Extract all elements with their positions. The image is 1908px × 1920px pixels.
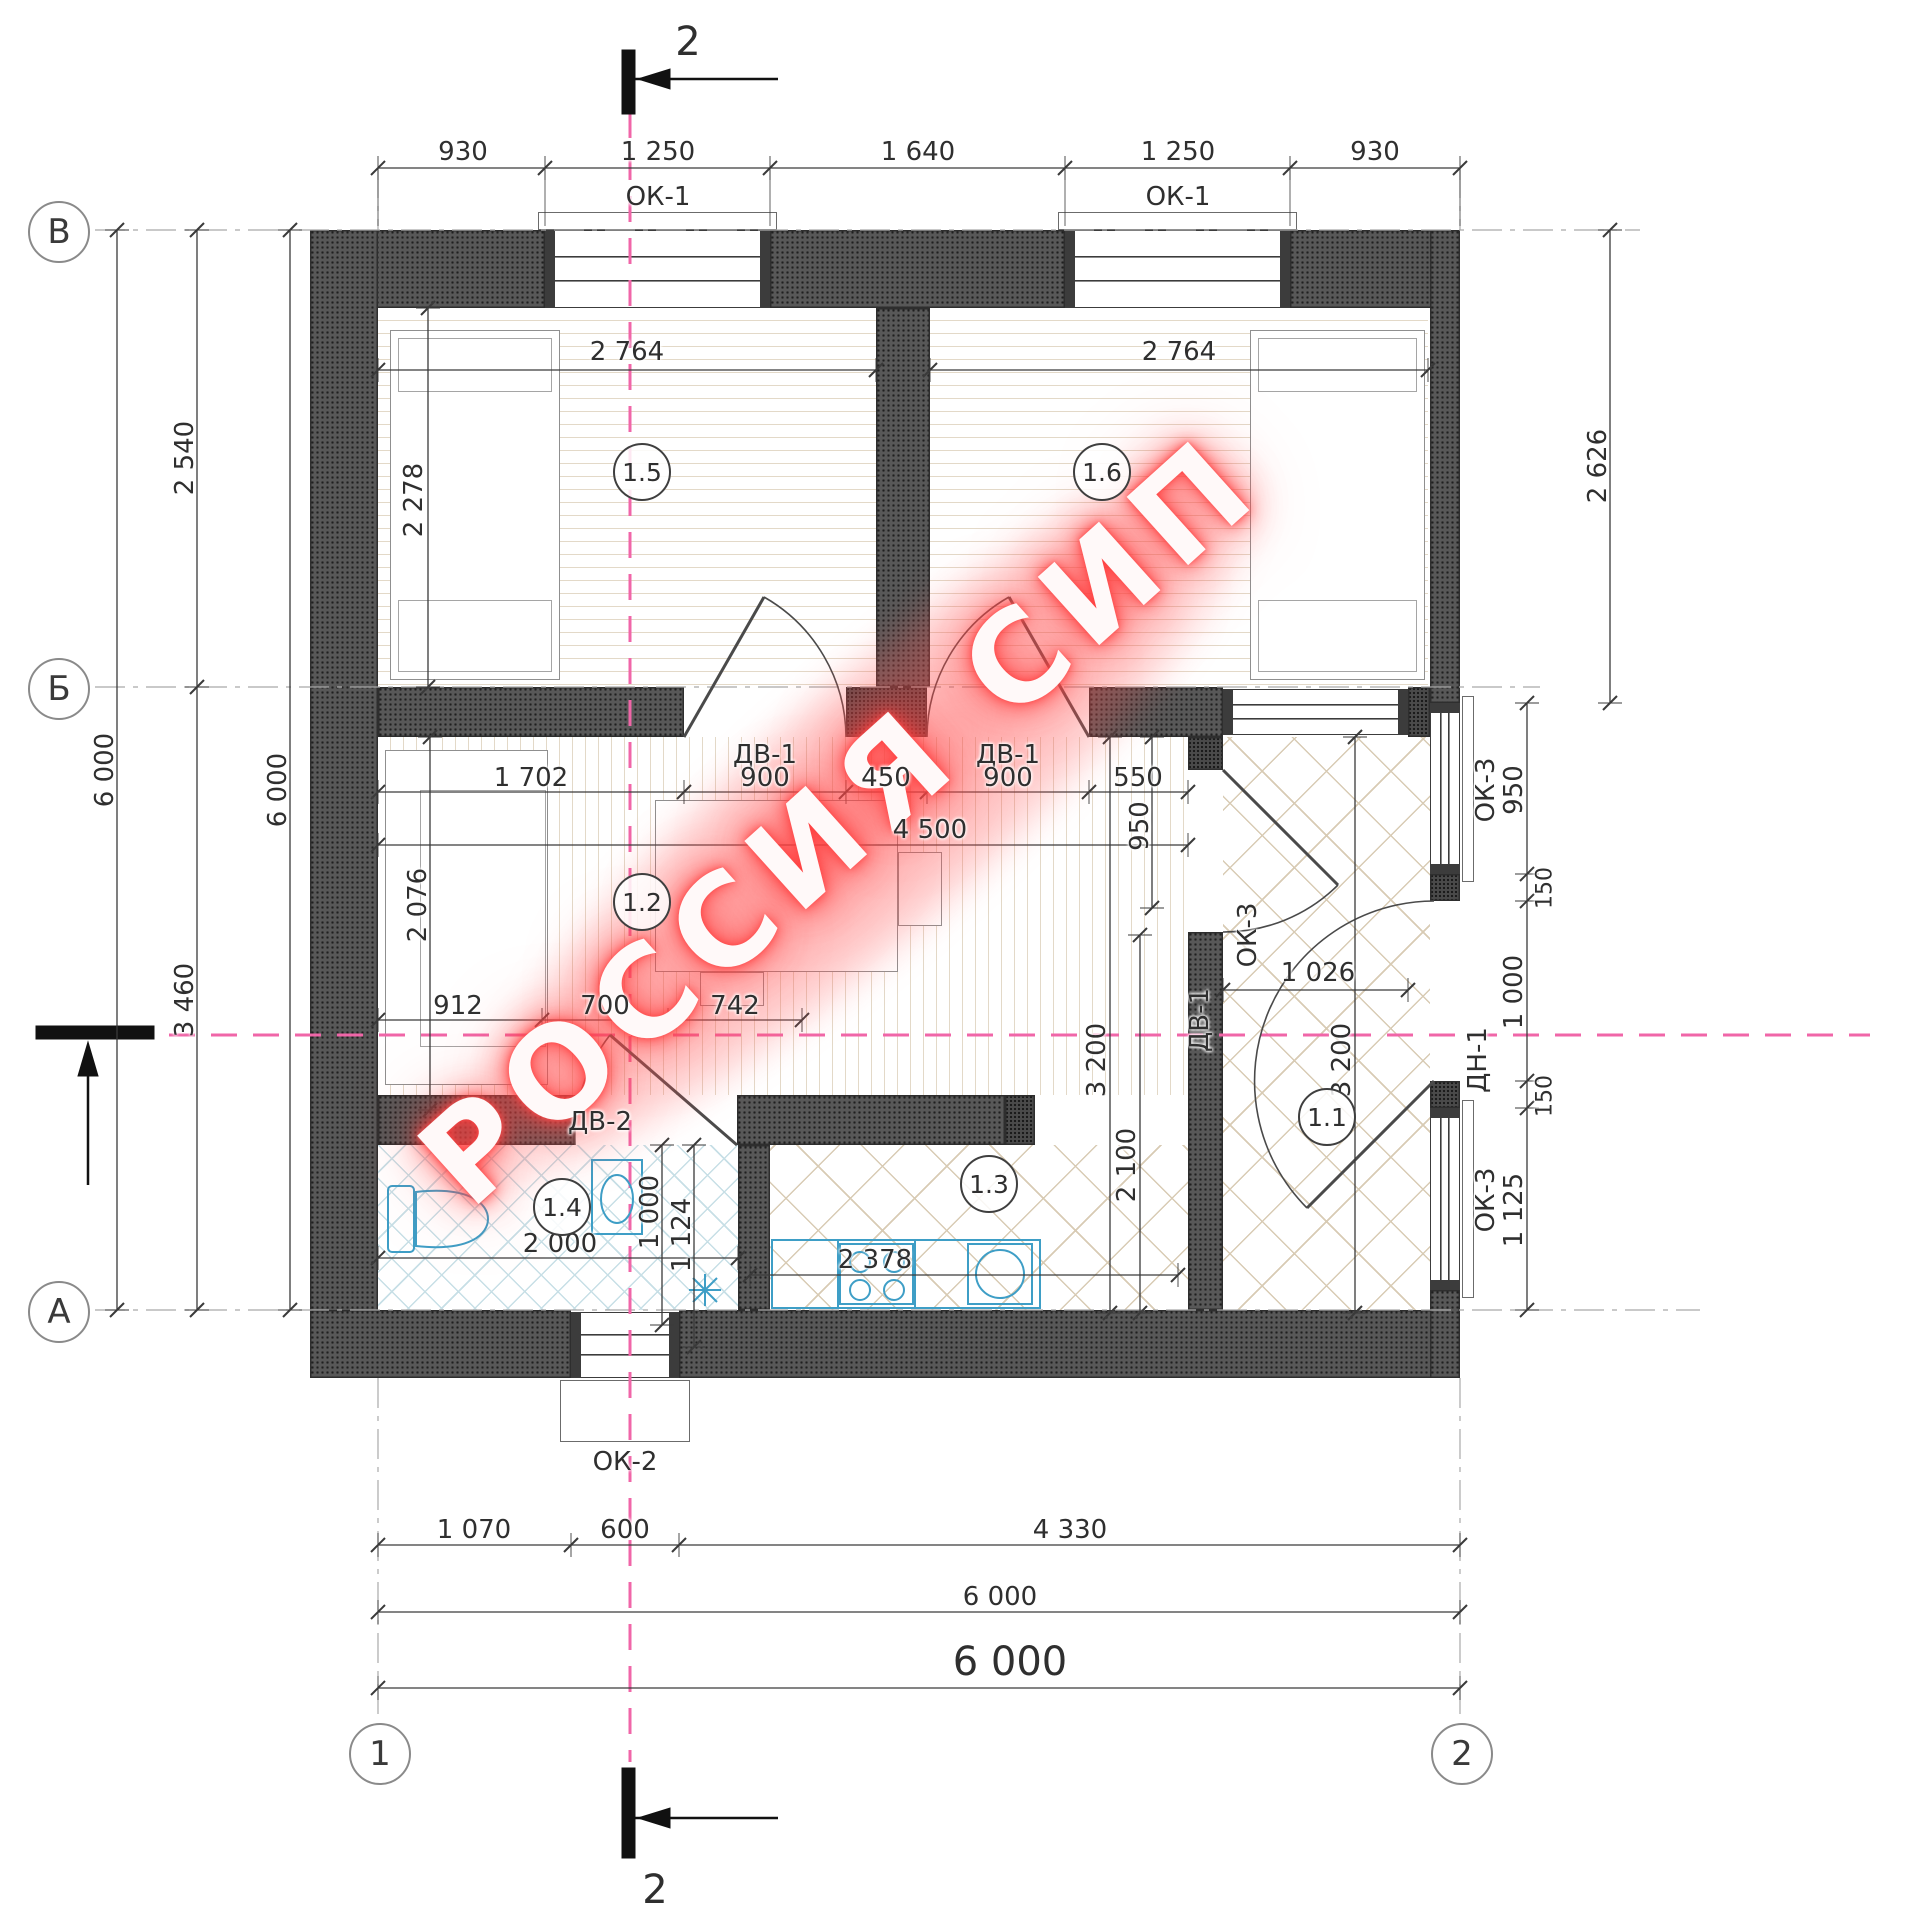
dim-label: 2 540	[170, 421, 200, 495]
dim-label: 1 125	[1499, 1173, 1529, 1247]
dim-label: 1 250	[1141, 137, 1215, 167]
dim-label: 1 124	[667, 1198, 697, 1272]
dim-label: 2 764	[1142, 337, 1216, 367]
dim-label: 150	[1533, 867, 1558, 909]
dim-label: 6 000	[90, 733, 120, 807]
dim-label: 2 378	[838, 1245, 912, 1275]
dim-label: 6 000	[263, 753, 293, 827]
dim-label: 930	[1350, 137, 1400, 167]
section-line-2-2	[85, 112, 1870, 1762]
dim-label: ОК-3	[1471, 758, 1501, 823]
axis-marker-2: 2	[1431, 1723, 1493, 1785]
dim-label: 1 250	[621, 137, 695, 167]
dim-label: 1 000	[1499, 955, 1529, 1029]
dim-label: ОК-1	[1146, 182, 1211, 212]
washer-drum	[976, 1250, 1024, 1298]
dim-label: 450	[861, 763, 911, 793]
dim-label: 600	[600, 1515, 650, 1545]
section-flag-bottom	[622, 1768, 778, 1858]
dim-label: 1 640	[881, 137, 955, 167]
dim-label: 2	[642, 1867, 667, 1913]
dim-label: 900	[740, 763, 790, 793]
dim-label: ОК-3	[1233, 903, 1263, 968]
dim-label: 6 000	[953, 1639, 1068, 1685]
dim-label: 2 626	[1583, 429, 1613, 503]
dim-label: 150	[1533, 1075, 1558, 1117]
toilet-tank	[388, 1186, 414, 1252]
axis-marker-1: 1	[349, 1723, 411, 1785]
dim-label: 3 460	[170, 963, 200, 1037]
dim-label: ОК-1	[626, 182, 691, 212]
dim-label: 900	[983, 763, 1033, 793]
dim-label: 2 764	[590, 337, 664, 367]
dim-label: 950	[1125, 801, 1155, 851]
door-dv1-hall-leaf	[1223, 770, 1338, 885]
dim-label: 700	[580, 991, 630, 1021]
axis-marker-В: В	[28, 201, 90, 263]
dim-label: 2 076	[403, 868, 433, 942]
dim-label: 950	[1499, 765, 1529, 815]
dim-label: 912	[433, 991, 483, 1021]
dim-label: 6 000	[963, 1582, 1037, 1612]
axis-marker-Б: Б	[28, 658, 90, 720]
door-dv1-left-leaf	[684, 597, 764, 737]
dim-label: 1 000	[635, 1175, 665, 1249]
dim-label: 4 500	[893, 815, 967, 845]
dim-label: 550	[1113, 763, 1163, 793]
room-marker-1.4: 1.4	[533, 1178, 591, 1236]
dim-label: 1 026	[1281, 958, 1355, 988]
floor-plan: РОССИЯ СИП 9301 2501 6401 250930ОК-1ОК-1…	[0, 0, 1908, 1920]
section-flag-left	[36, 1026, 154, 1185]
dim-label: 2 278	[399, 463, 429, 537]
dim-label: ОК-3	[1471, 1168, 1501, 1233]
dim-label: ДВ-2	[568, 1107, 632, 1137]
dim-label: ОК-2	[593, 1447, 658, 1477]
washer	[968, 1244, 1032, 1304]
dim-label: 3 200	[1327, 1023, 1357, 1097]
dim-label: 2	[675, 19, 700, 65]
dim-label: 1 702	[494, 763, 568, 793]
room-marker-1.2: 1.2	[613, 873, 671, 931]
dim-label: 3 200	[1082, 1023, 1112, 1097]
dim-label: 4 330	[1033, 1515, 1107, 1545]
dim-label: ДН-1	[1463, 1027, 1493, 1093]
dim-label: 1 070	[437, 1515, 511, 1545]
room-marker-1.1: 1.1	[1298, 1088, 1356, 1146]
room-marker-1.6: 1.6	[1073, 443, 1131, 501]
room-marker-1.5: 1.5	[613, 443, 671, 501]
dim-label: 930	[438, 137, 488, 167]
linework-layer	[0, 0, 1908, 1920]
room-marker-1.3: 1.3	[960, 1155, 1018, 1213]
bathroom-sink-bowl	[601, 1175, 633, 1223]
dim-label: 2 100	[1112, 1128, 1142, 1202]
dim-label: 742	[710, 991, 760, 1021]
dim-label: ДВ-1	[1185, 988, 1215, 1052]
axis-marker-А: А	[28, 1281, 90, 1343]
